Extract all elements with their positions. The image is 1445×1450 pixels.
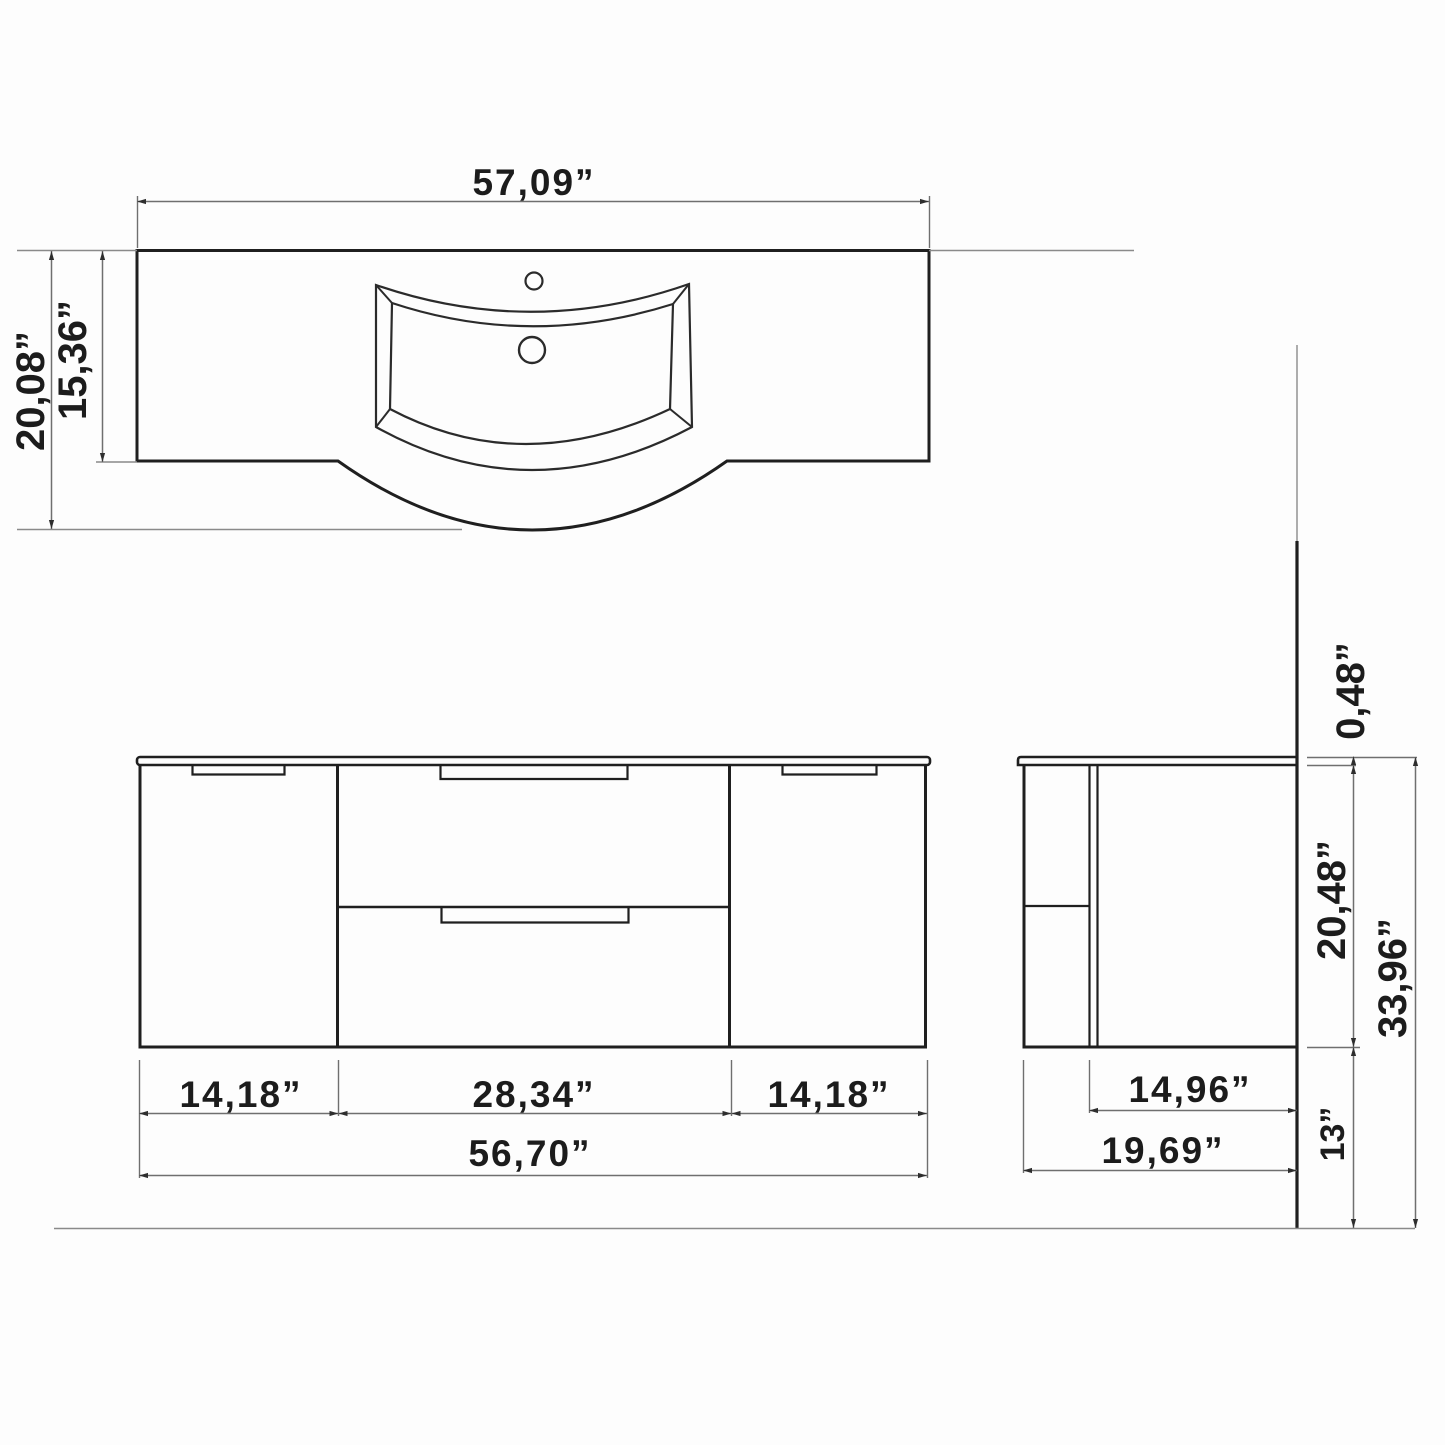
svg-text:14,18”: 14,18” (179, 1074, 302, 1115)
svg-text:33,96”: 33,96” (1371, 918, 1415, 1038)
svg-text:19,69”: 19,69” (1101, 1130, 1224, 1171)
svg-text:15,36”: 15,36” (51, 300, 95, 420)
svg-text:20,08”: 20,08” (9, 331, 53, 451)
svg-text:14,18”: 14,18” (767, 1074, 890, 1115)
svg-text:28,34”: 28,34” (472, 1074, 595, 1115)
svg-text:57,09”: 57,09” (472, 162, 595, 203)
svg-text:56,70”: 56,70” (468, 1133, 591, 1174)
svg-text:13”: 13” (1314, 1107, 1352, 1162)
svg-text:0,48”: 0,48” (1329, 642, 1373, 740)
svg-text:20,48”: 20,48” (1310, 840, 1354, 960)
svg-text:14,96”: 14,96” (1128, 1069, 1251, 1110)
